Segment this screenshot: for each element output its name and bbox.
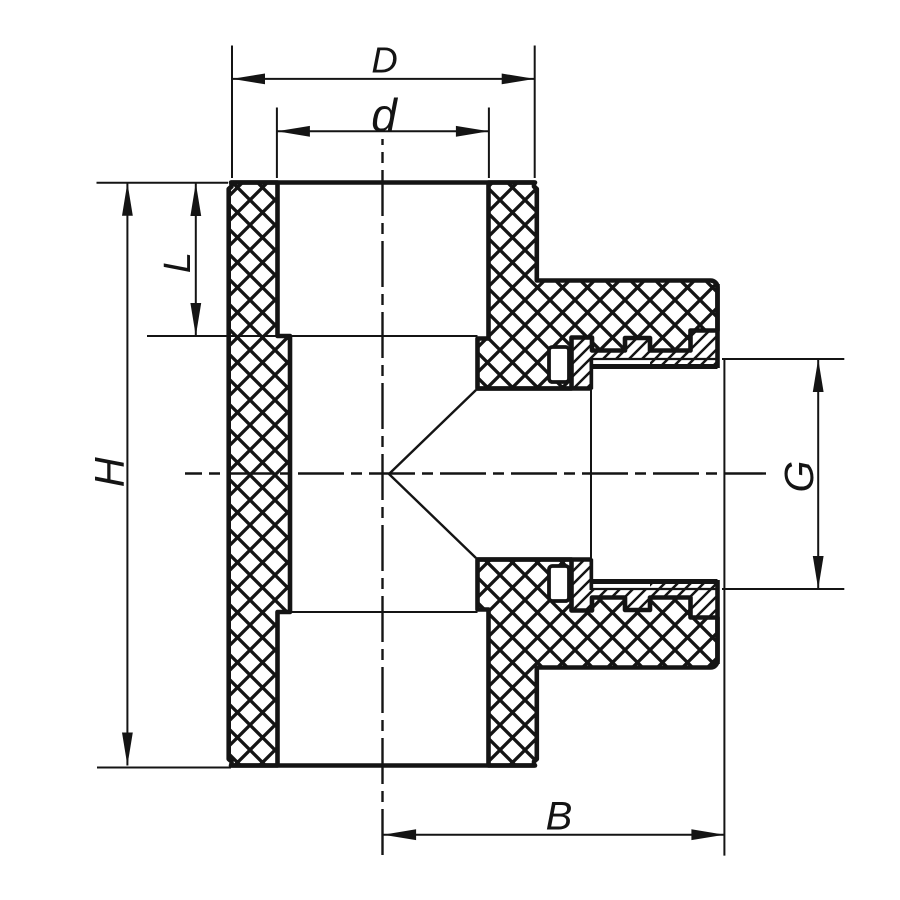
svg-text:D: D bbox=[371, 40, 397, 81]
svg-text:H: H bbox=[86, 456, 133, 487]
svg-text:d: d bbox=[371, 89, 398, 141]
svg-text:B: B bbox=[546, 795, 573, 839]
svg-text:L: L bbox=[157, 252, 199, 273]
svg-text:G: G bbox=[776, 461, 822, 493]
